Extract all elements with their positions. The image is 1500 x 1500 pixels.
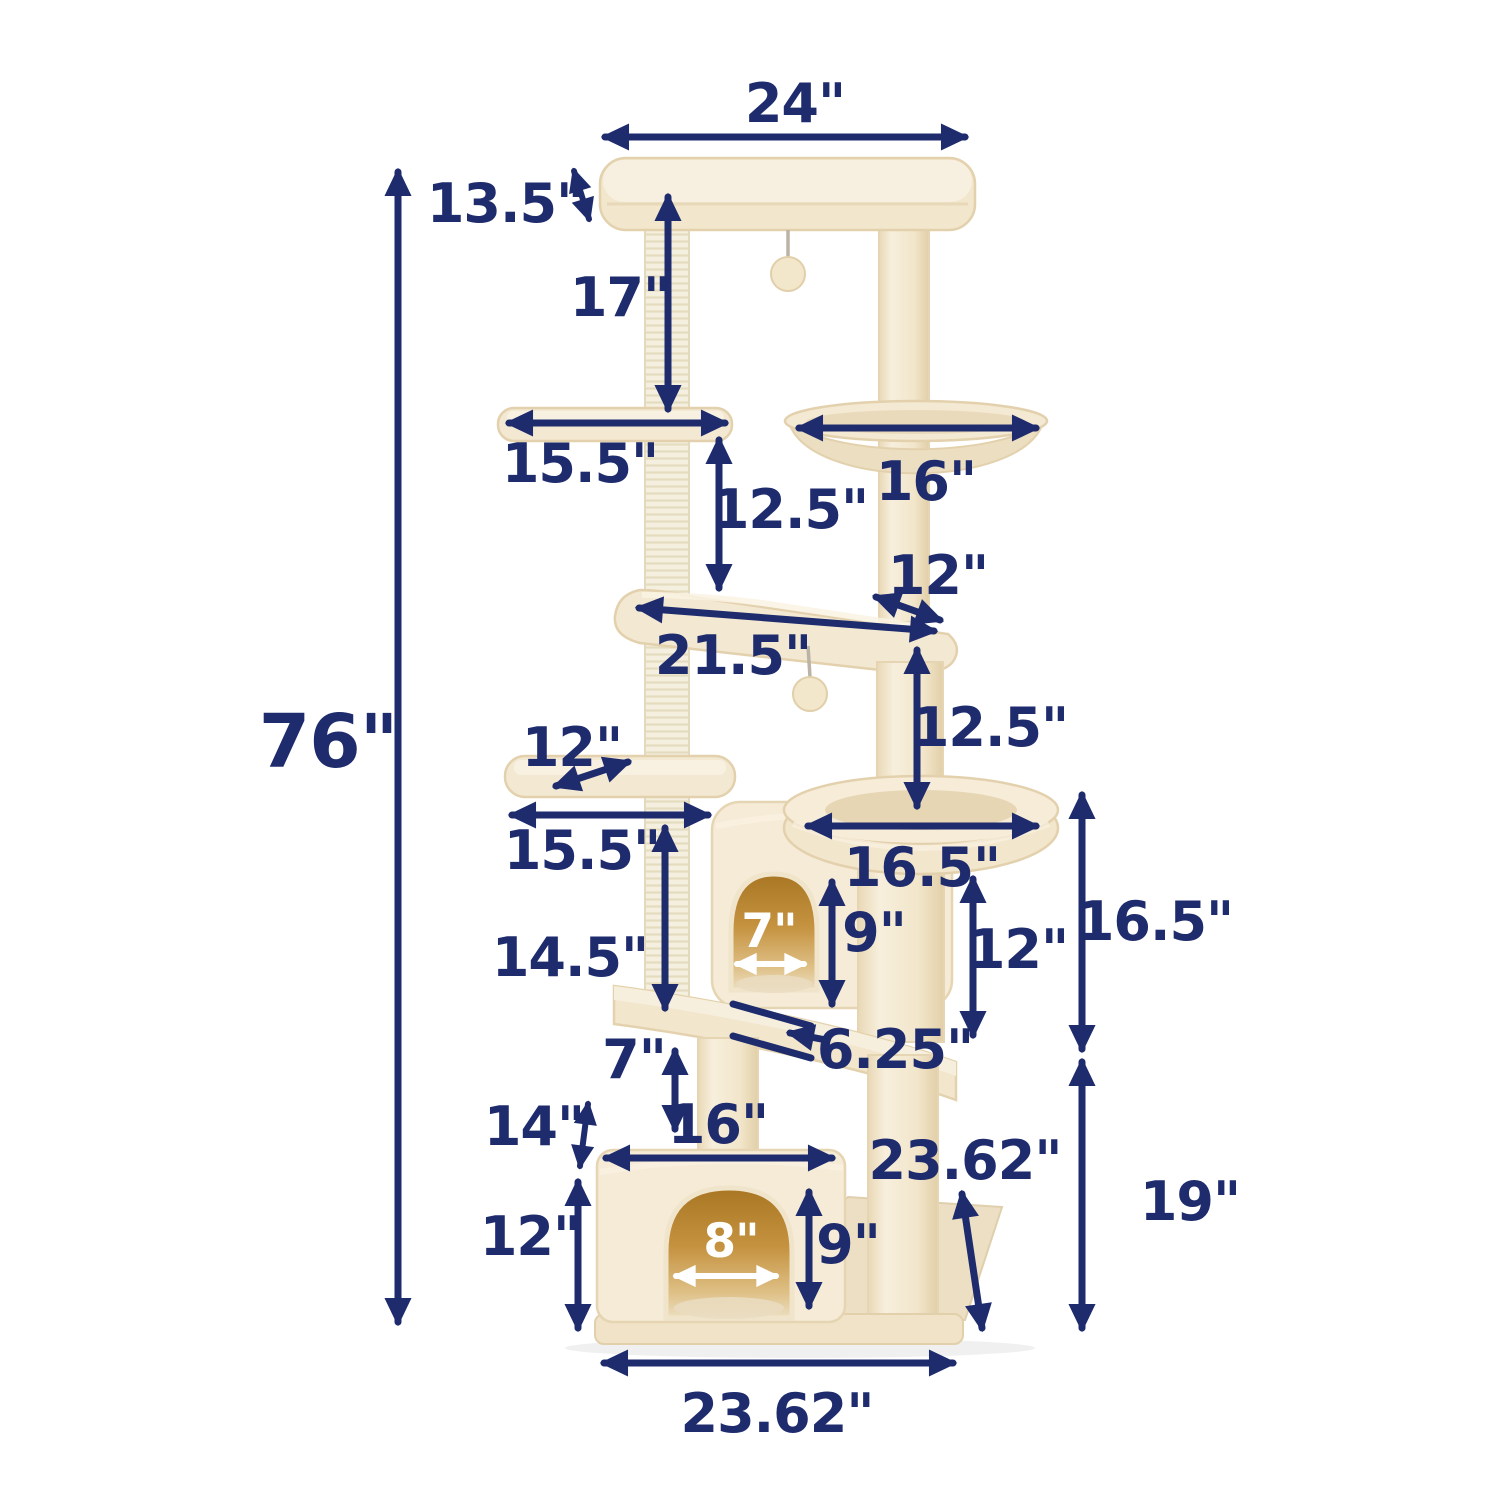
diagram-canvas: 76" 24" 13.5" 17" 15.5" 16" 12.5" 21.5" …	[0, 0, 1500, 1500]
top-platform	[600, 158, 975, 230]
dim-top-to-perch-label: 17"	[570, 266, 670, 329]
dim-house-door-height-label: 9"	[816, 1213, 880, 1276]
dim-house-top-label: 16"	[668, 1093, 768, 1156]
dimension-annotations: 76" 24" 13.5" 17" 15.5" 16" 12.5" 21.5" …	[259, 72, 1240, 1445]
dim-base-section-label: 19"	[1140, 1170, 1240, 1233]
dim-condo-level-label: 14.5"	[492, 926, 648, 989]
plush-post-top-right	[879, 226, 929, 410]
dim-top-width-label: 24"	[745, 72, 845, 135]
dim-condo-door-height-label: 9"	[842, 901, 906, 964]
dim-ledge-label: 6.25"	[817, 1018, 973, 1081]
cat-tree-dimension-diagram: 76" 24" 13.5" 17" 15.5" 16" 12.5" 21.5" …	[0, 0, 1500, 1500]
dim-total-height-label: 76"	[259, 699, 398, 785]
dim-bed-section-label: 16.5"	[1077, 890, 1233, 953]
dim-condo-door-width-label: 7"	[741, 904, 796, 959]
dim-house-door-width-label: 8"	[703, 1214, 758, 1269]
dim-base-width-label: 23.62"	[681, 1382, 874, 1445]
dim-bed-width-label: 16.5"	[844, 836, 1000, 899]
dim-platform-corner-label: 12"	[888, 544, 988, 607]
dim-hammock-label: 16"	[876, 450, 976, 513]
dim-upper-perch-label: 15.5"	[502, 432, 658, 495]
dim-small-perch-label: 12"	[522, 716, 622, 779]
dim-top-depth-label: 13.5"	[427, 172, 583, 235]
dim-house-depth-label: 14"	[484, 1095, 584, 1158]
dim-lower-width-label: 15.5"	[504, 819, 660, 882]
dim-upper-gap-label: 12.5"	[712, 478, 868, 541]
dim-platform-width-label: 21.5"	[655, 624, 811, 687]
toy-ball-top	[771, 257, 805, 291]
dim-base-depth-label: 23.62"	[869, 1129, 1062, 1192]
dim-bed-pedestal-label: 12"	[968, 918, 1068, 981]
dim-mid-gap-label: 12.5"	[912, 696, 1068, 759]
dim-ledge-gap-label: 7"	[602, 1028, 666, 1091]
dim-house-height-label: 12"	[480, 1205, 580, 1268]
